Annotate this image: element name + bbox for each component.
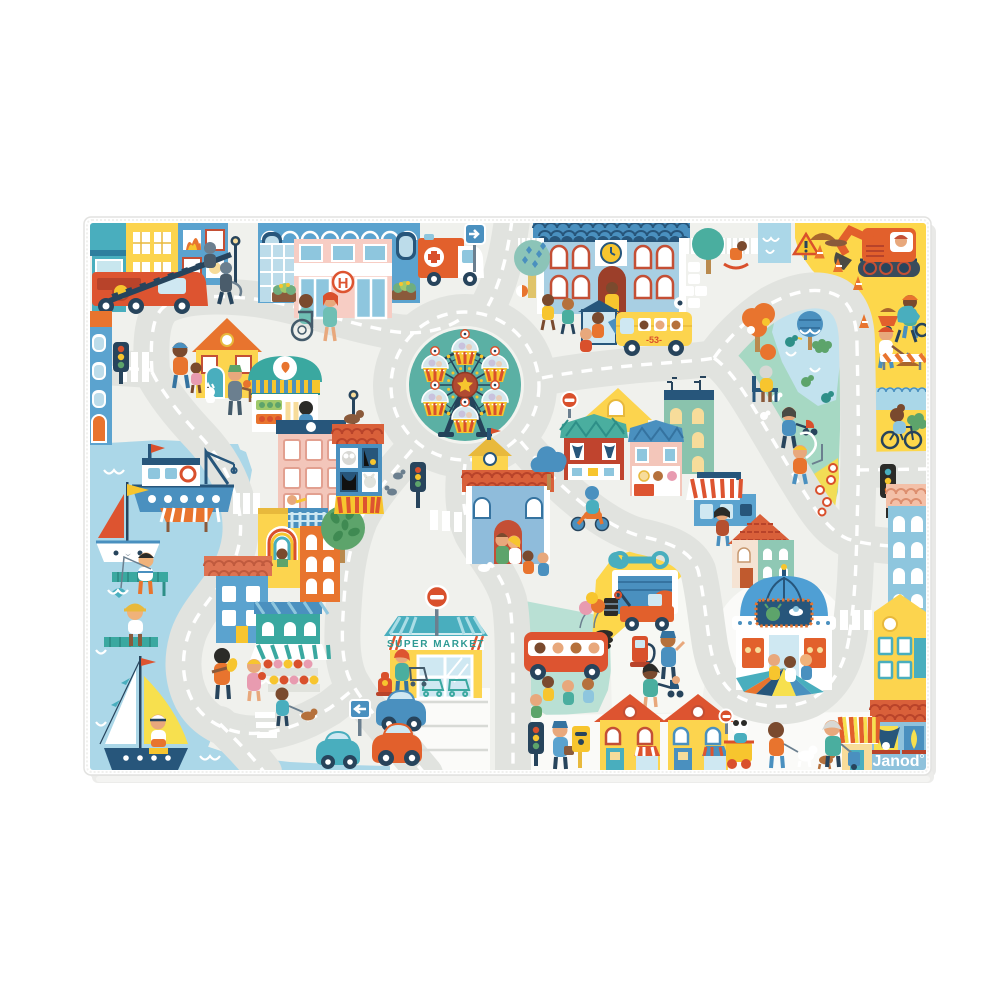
svg-text:-53-: -53- bbox=[646, 335, 662, 345]
svg-text:H: H bbox=[338, 275, 349, 292]
svg-text:SUPER MARKET: SUPER MARKET bbox=[387, 639, 485, 650]
svg-text:Janod: Janod bbox=[872, 753, 919, 770]
